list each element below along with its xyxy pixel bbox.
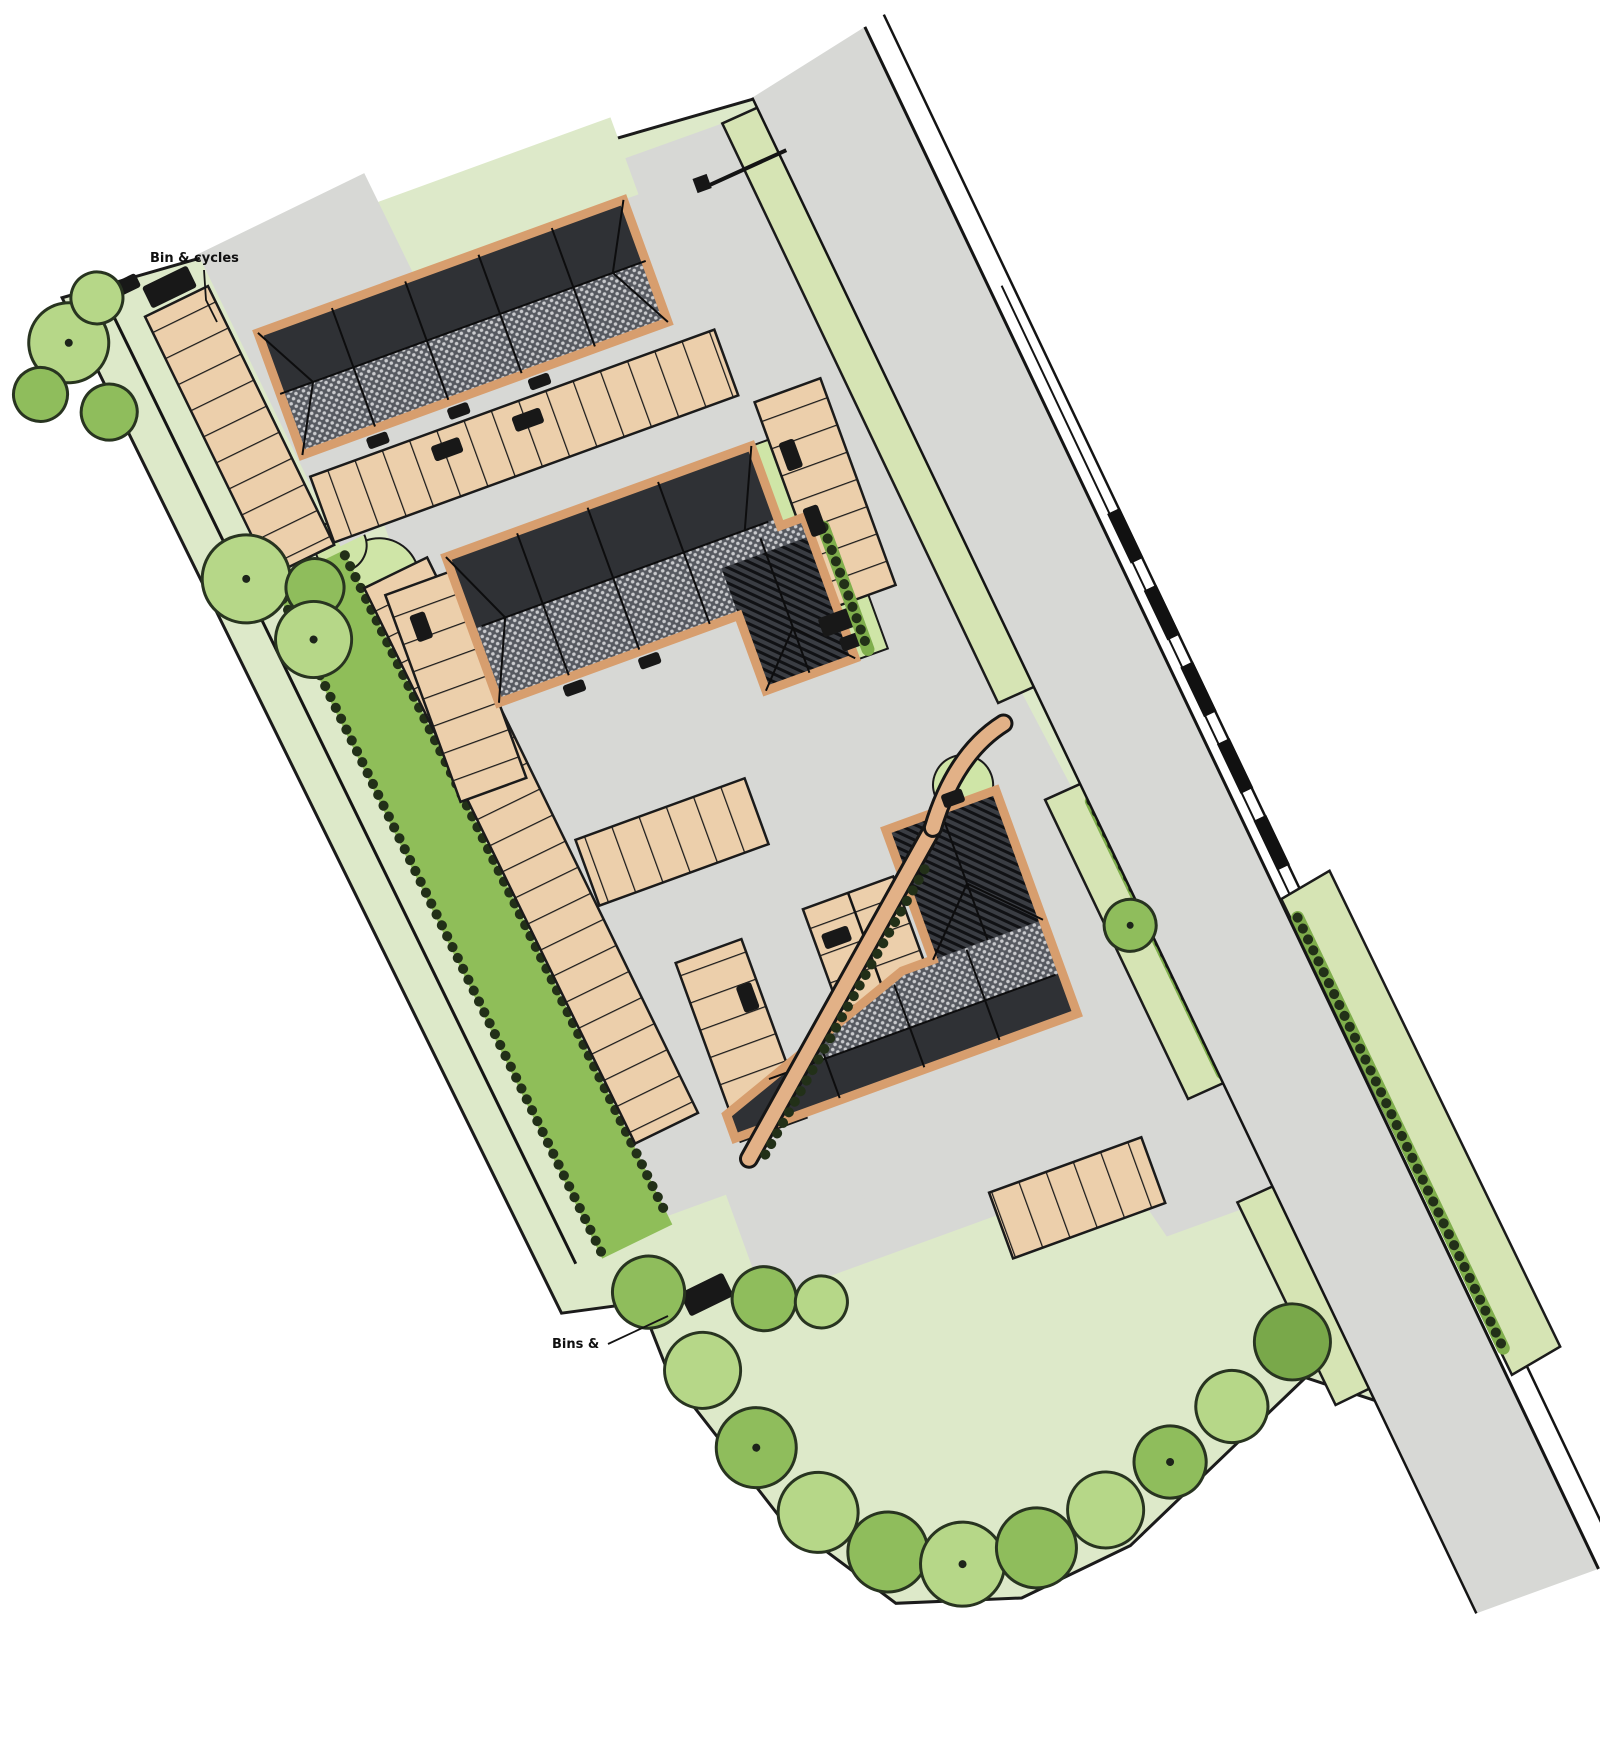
label-bin-cycles: Bin & cycles (150, 251, 239, 266)
site-plan-drawing: Bin & cycles Bins & (0, 0, 1600, 1745)
label-bins: Bins & (552, 1337, 599, 1352)
site-plan-canvas: Bin & cycles Bins & (0, 0, 1600, 1745)
